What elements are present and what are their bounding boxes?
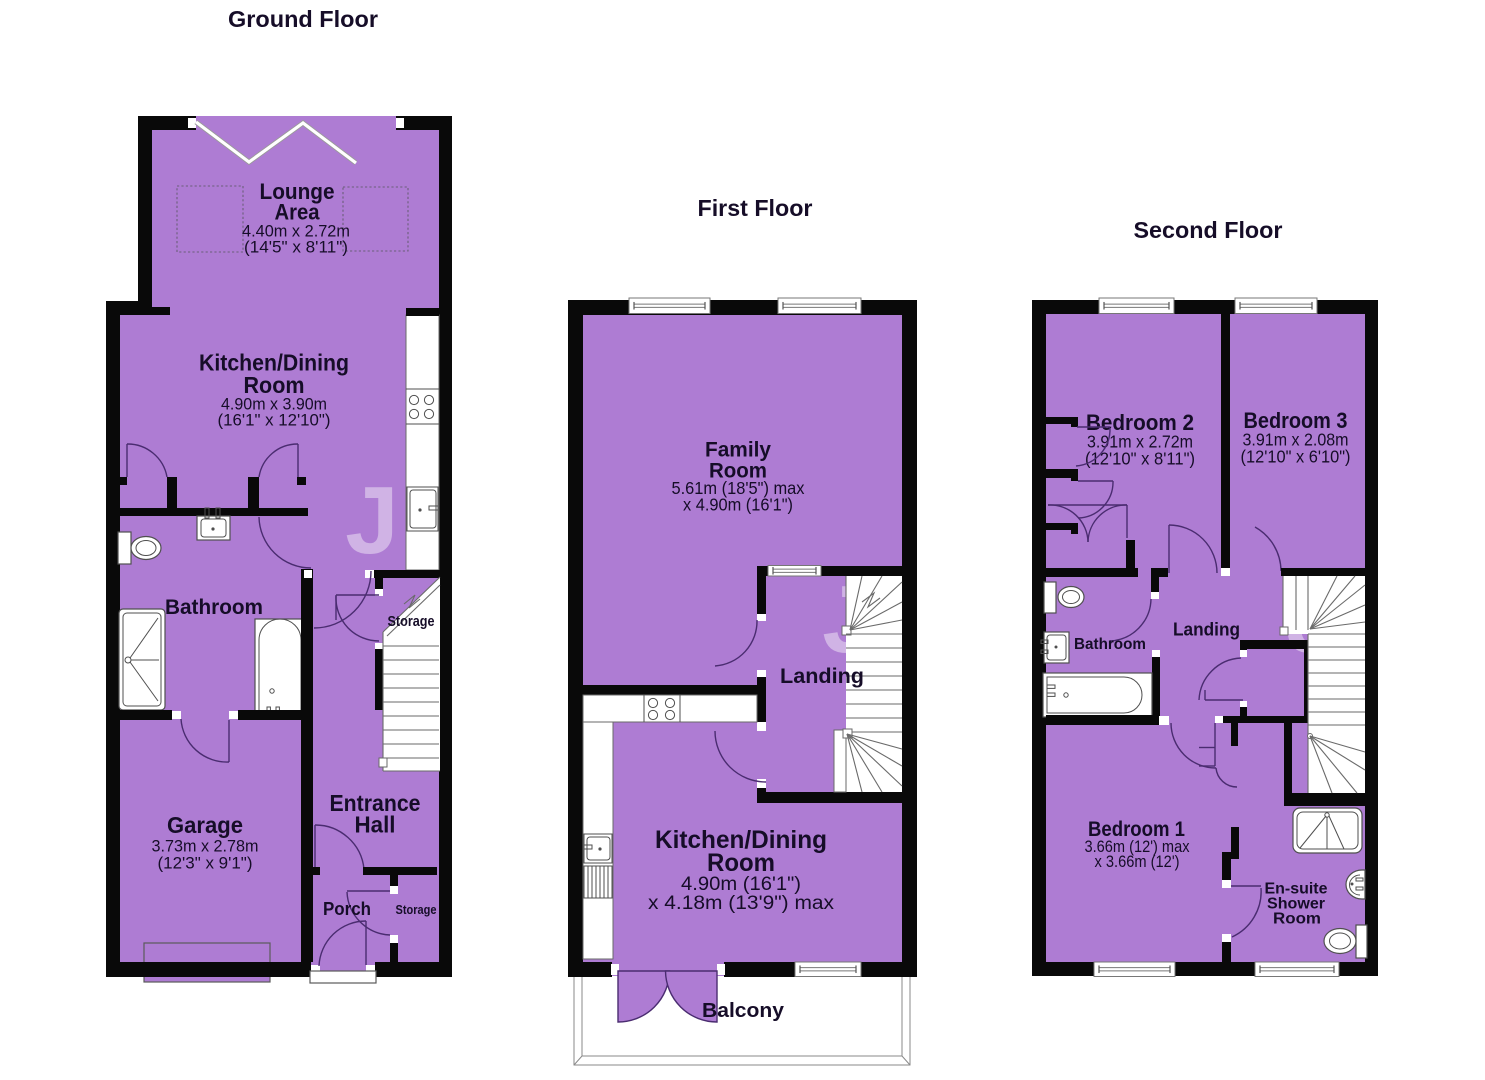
svg-text:Landing: Landing bbox=[1173, 619, 1240, 640]
svg-text:Room: Room bbox=[707, 849, 775, 877]
svg-text:Bathroom: Bathroom bbox=[165, 596, 263, 619]
svg-text:(12'3" x 9'1"): (12'3" x 9'1") bbox=[158, 854, 253, 873]
svg-text:Balcony: Balcony bbox=[702, 999, 785, 1022]
svg-text:4.90m (16'1"): 4.90m (16'1") bbox=[681, 874, 801, 895]
svg-text:Room: Room bbox=[1273, 911, 1321, 928]
svg-text:Porch: Porch bbox=[323, 899, 371, 919]
svg-text:x 4.18m (13'9") max: x 4.18m (13'9") max bbox=[648, 893, 835, 914]
svg-text:x 4.90m (16'1"): x 4.90m (16'1") bbox=[683, 495, 793, 515]
svg-text:J: J bbox=[345, 467, 398, 574]
svg-text:Bathroom: Bathroom bbox=[1074, 636, 1146, 653]
svg-text:First Floor: First Floor bbox=[698, 195, 813, 221]
svg-text:Storage: Storage bbox=[396, 902, 437, 917]
svg-text:(16'1" x 12'10"): (16'1" x 12'10") bbox=[218, 411, 331, 430]
svg-text:Landing: Landing bbox=[780, 664, 864, 688]
svg-text:x 3.66m (12'): x 3.66m (12') bbox=[1095, 852, 1180, 871]
svg-text:Hall: Hall bbox=[355, 812, 396, 838]
svg-text:(12'10" x 8'11"): (12'10" x 8'11") bbox=[1085, 449, 1195, 469]
svg-text:Storage: Storage bbox=[388, 614, 435, 630]
svg-text:Second Floor: Second Floor bbox=[1134, 217, 1283, 243]
svg-text:Garage: Garage bbox=[167, 812, 243, 838]
svg-text:(14'5" x 8'11"): (14'5" x 8'11") bbox=[244, 238, 348, 257]
svg-text:Ground Floor: Ground Floor bbox=[228, 6, 378, 32]
svg-text:(12'10" x 6'10"): (12'10" x 6'10") bbox=[1241, 447, 1351, 467]
